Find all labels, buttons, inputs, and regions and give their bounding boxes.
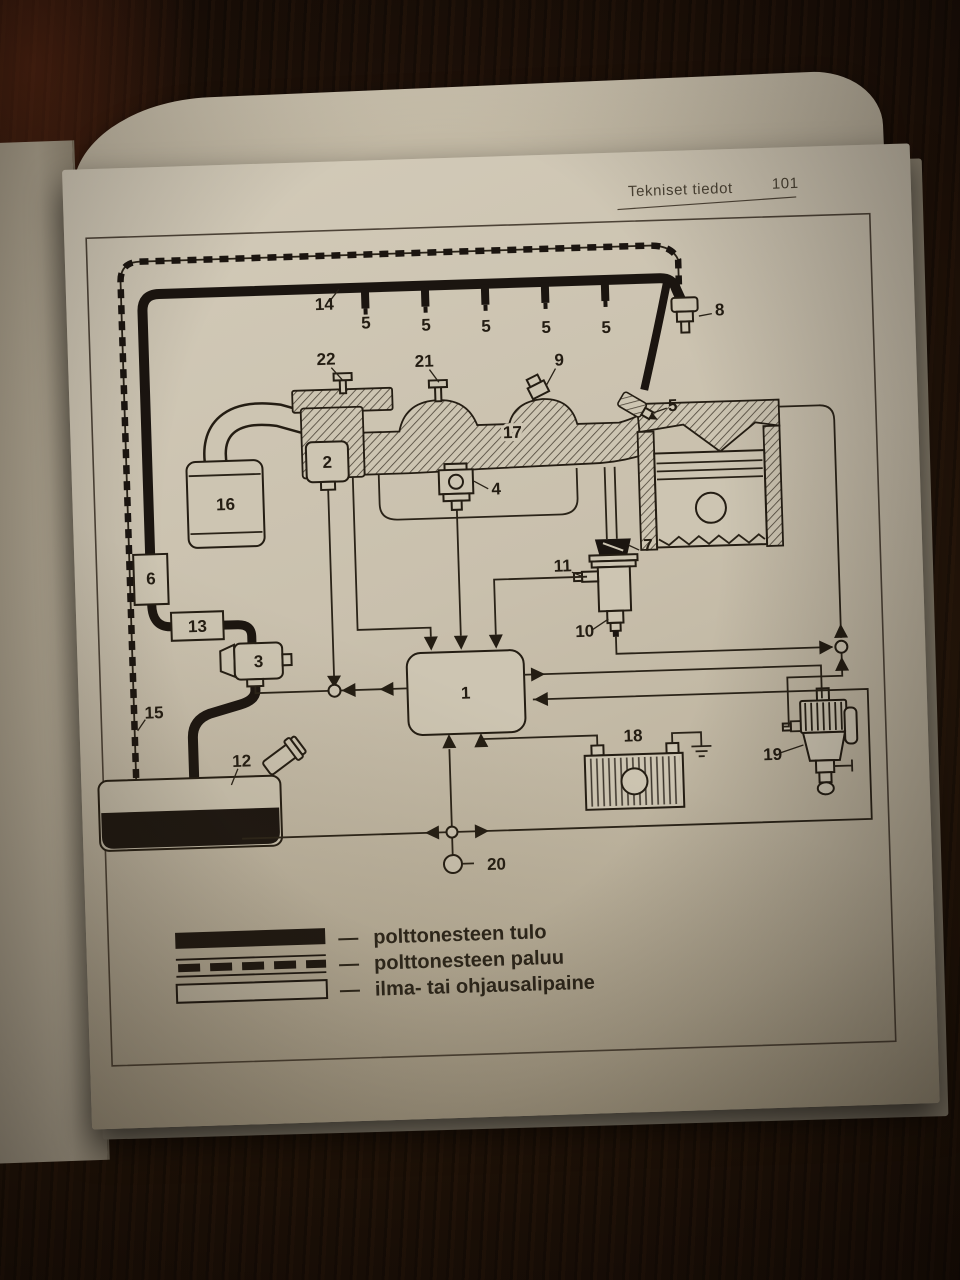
page-shadow-gradient bbox=[62, 143, 940, 1129]
photo-scene: n Tekniset tiedot 101 bbox=[0, 0, 960, 1280]
manual-page: Tekniset tiedot 101 bbox=[62, 143, 940, 1129]
